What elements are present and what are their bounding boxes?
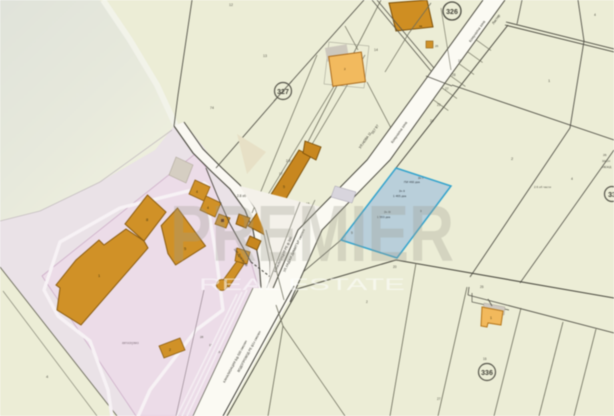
svg-text:27: 27 [437,397,441,401]
svg-text:ПИ 460 дка: ПИ 460 дка [404,180,420,184]
svg-text:16: 16 [483,357,487,361]
svg-text:МЕЖД: МЕЖД [602,165,611,169]
svg-text:2.6 об части: 2.6 об части [534,185,551,189]
svg-text:2Б: 2Б [603,153,607,157]
svg-text:17: 17 [279,172,283,176]
svg-text:28: 28 [200,335,204,339]
svg-text:26: 26 [435,44,439,48]
svg-text:26: 26 [480,285,484,289]
svg-text:14: 14 [374,48,378,52]
svg-text:PREMIER: PREMIER [170,189,454,278]
svg-text:24: 24 [430,119,434,123]
svg-text:326: 326 [446,9,458,16]
svg-text:19: 19 [458,59,462,63]
svg-text:25: 25 [437,103,441,107]
svg-text:12: 12 [229,3,233,7]
svg-text:27: 27 [445,87,449,91]
svg-text:74: 74 [210,106,214,110]
svg-text:REAL ESTATE: REAL ESTATE [199,275,405,294]
svg-text:28: 28 [452,73,456,77]
svg-text:4: 4 [594,13,596,17]
svg-text:336: 336 [481,370,493,377]
svg-text:33: 33 [608,192,614,199]
svg-text:4: 4 [571,177,573,181]
svg-text:за: за [419,24,422,28]
svg-text:2: 2 [169,348,171,352]
svg-text:ЗАСН: ЗАСН [602,159,610,163]
svg-text:автосервиз: автосервиз [122,341,139,345]
svg-text:13: 13 [263,54,267,58]
svg-text:1: 1 [490,316,492,320]
svg-text:2: 2 [366,300,368,304]
